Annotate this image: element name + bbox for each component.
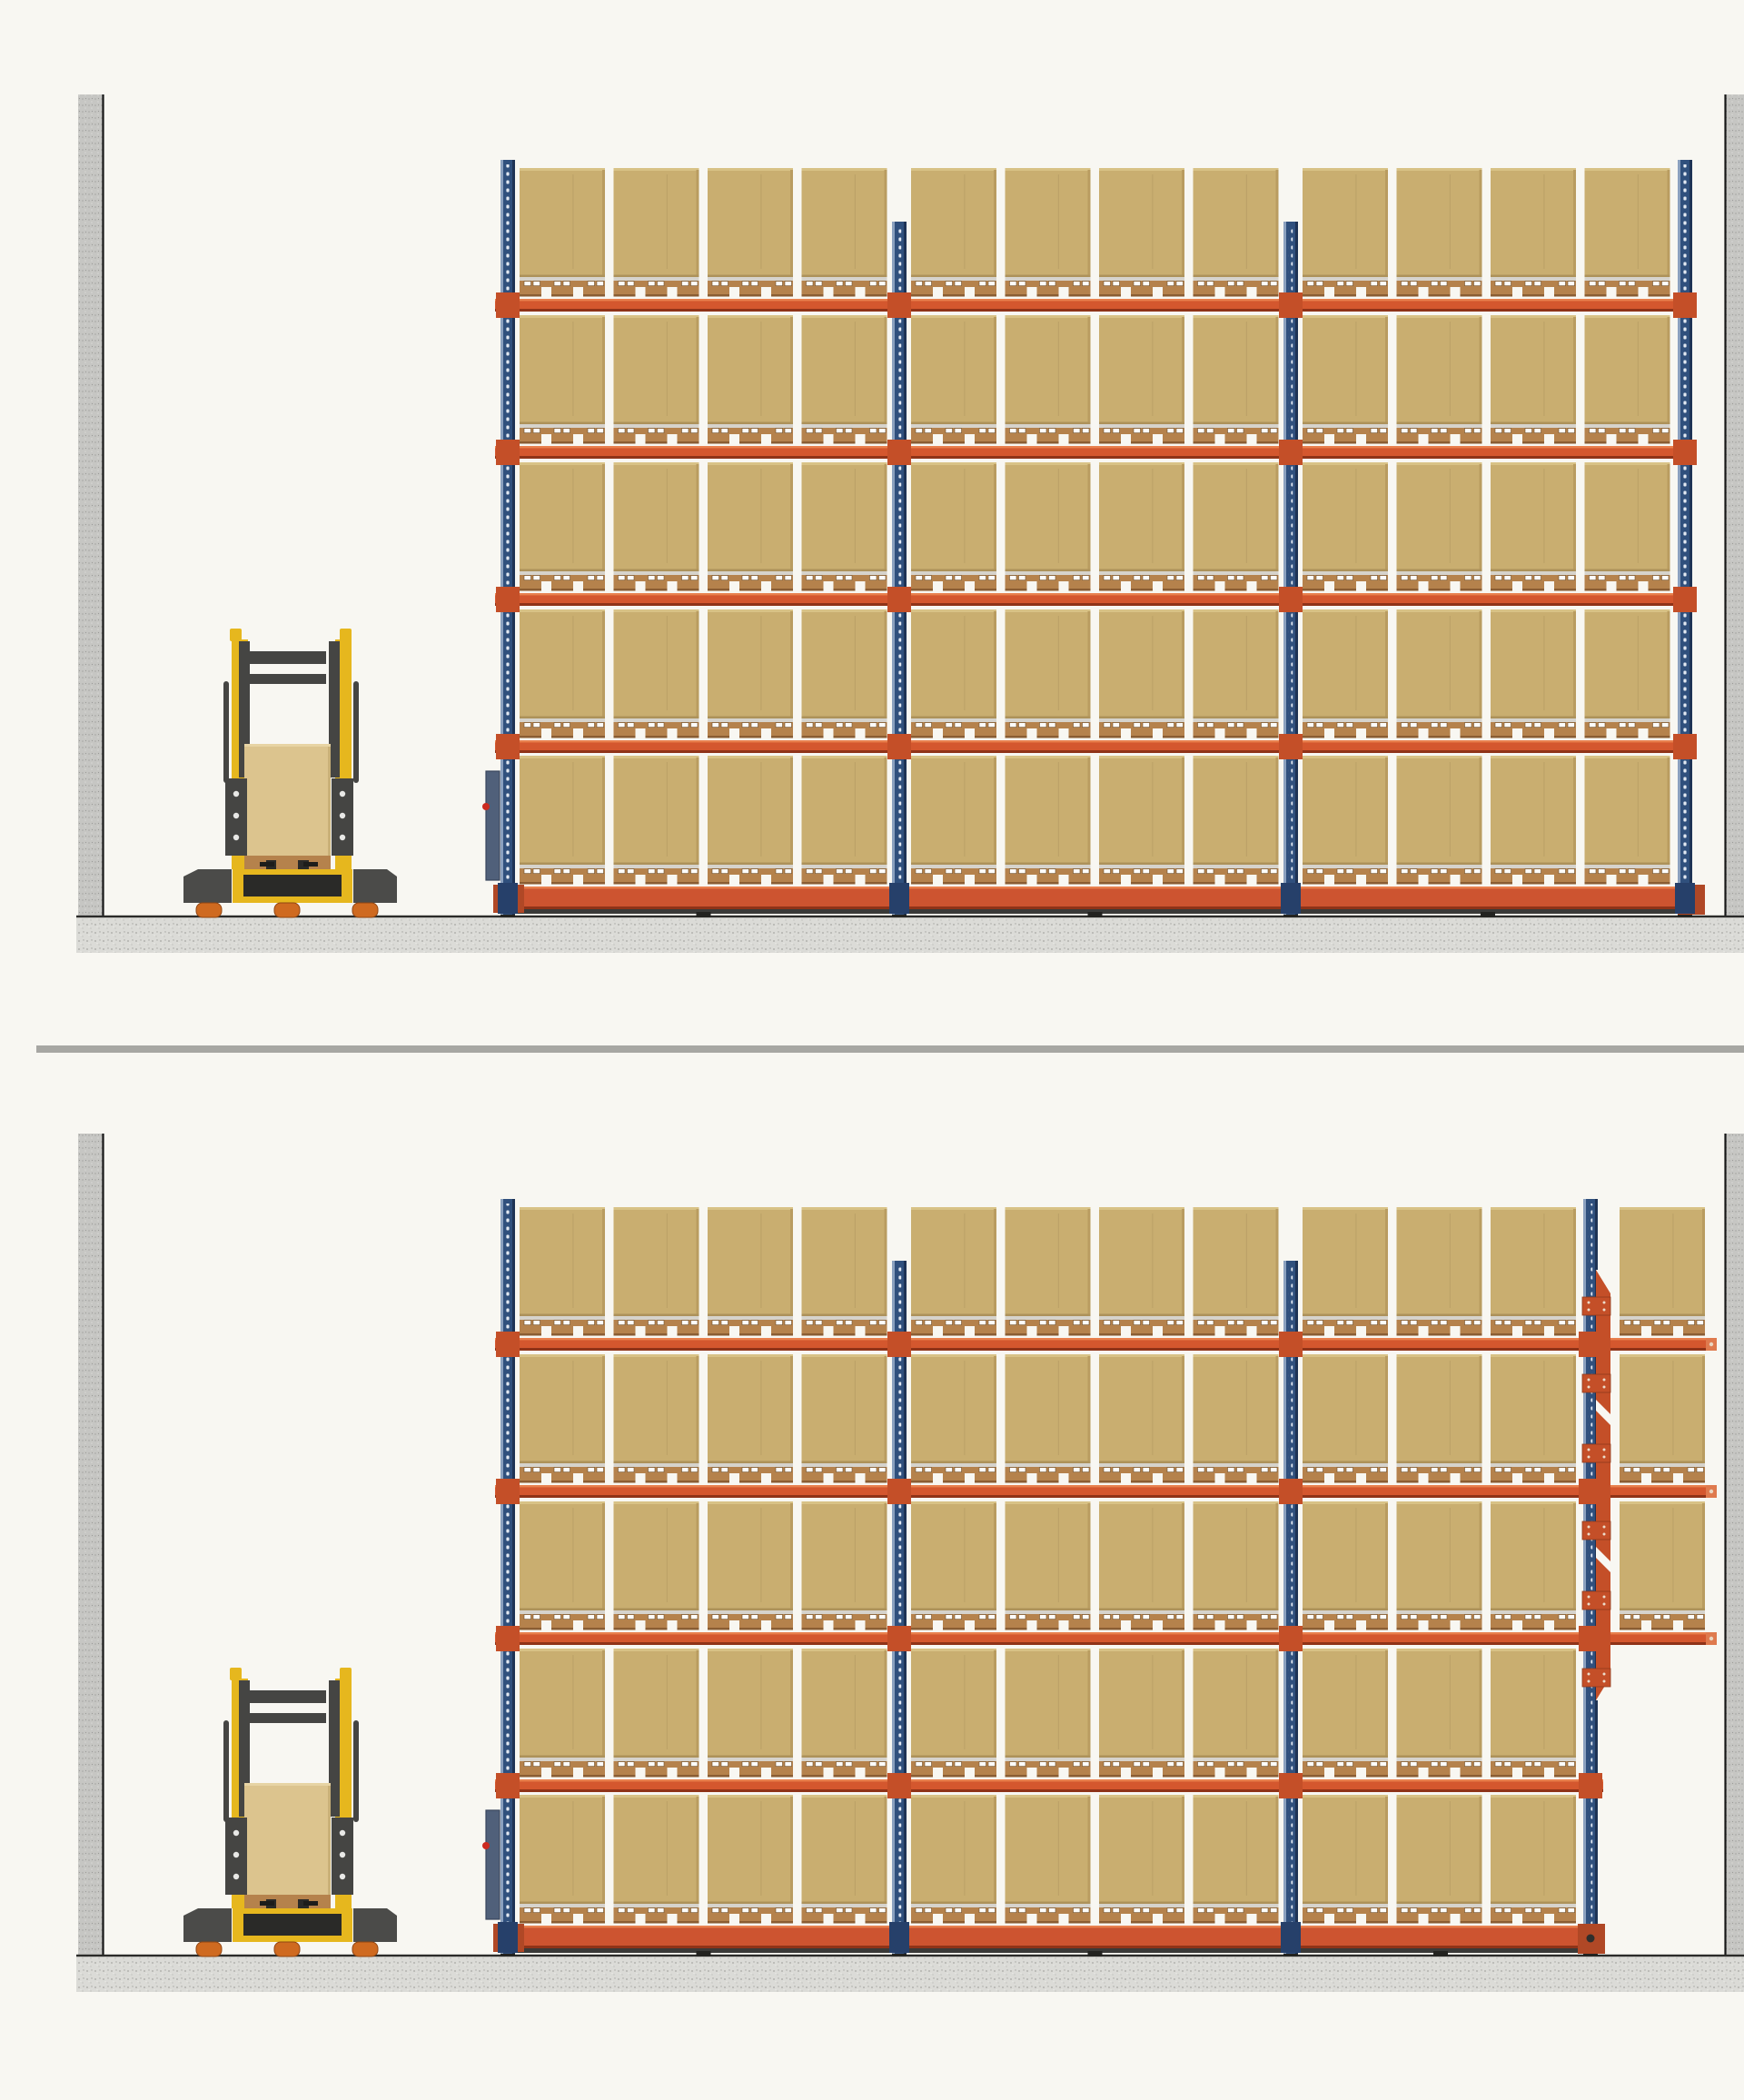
panel-divider [36,1045,1744,1053]
left-wall [78,94,104,917]
right-wall [1724,94,1744,917]
illustration-canvas [36,15,1744,2085]
pallet-loads [520,1207,1576,1924]
right-wall [1724,1134,1744,1956]
left-wall [78,1134,104,1956]
floor [76,1955,1744,1992]
floor [76,916,1744,953]
warehouse-racking-diagram [36,15,1744,2085]
